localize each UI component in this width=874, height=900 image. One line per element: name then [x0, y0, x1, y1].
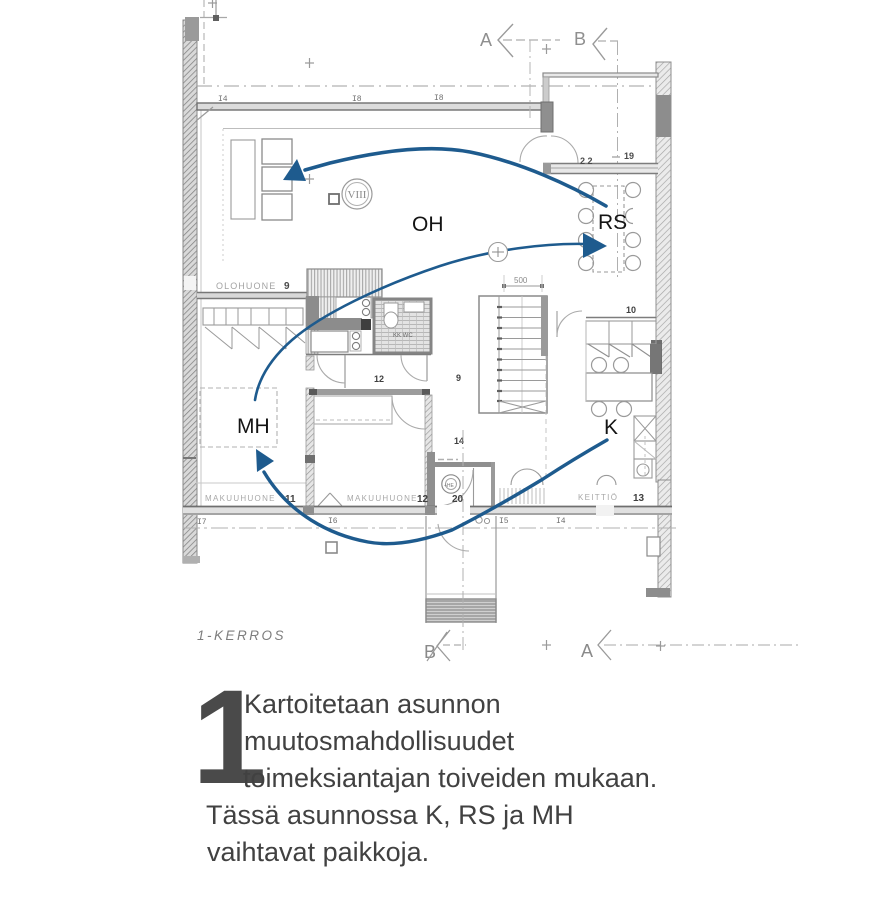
svg-text:K: K — [604, 416, 618, 439]
svg-text:OH: OH — [412, 213, 444, 236]
svg-text:A: A — [581, 641, 593, 661]
svg-text:500: 500 — [514, 276, 528, 285]
svg-text:RS: RS — [598, 211, 627, 234]
svg-text:19: 19 — [624, 151, 634, 161]
svg-text:OLOHUONE: OLOHUONE — [216, 281, 276, 291]
svg-text:I7: I7 — [197, 518, 207, 527]
svg-text:I5: I5 — [499, 517, 509, 526]
svg-text:9: 9 — [284, 281, 290, 292]
svg-text:2 2: 2 2 — [580, 156, 593, 166]
svg-text:B: B — [424, 642, 436, 662]
svg-text:MAKUUHUONE: MAKUUHUONE — [205, 494, 276, 503]
svg-text:B: B — [574, 29, 586, 49]
svg-text:I4: I4 — [218, 95, 228, 104]
svg-text:MH: MH — [237, 415, 270, 438]
svg-text:+HE: +HE — [444, 483, 455, 489]
svg-text:12: 12 — [374, 374, 384, 384]
svg-text:I4: I4 — [556, 517, 566, 526]
svg-text:KEITTIÖ: KEITTIÖ — [578, 493, 618, 502]
svg-text:KK WC: KK WC — [393, 333, 413, 339]
svg-text:10: 10 — [626, 305, 636, 315]
svg-text:I8: I8 — [352, 95, 362, 104]
svg-text:I6: I6 — [328, 517, 338, 526]
svg-text:20: 20 — [452, 494, 464, 505]
svg-text:A: A — [480, 30, 492, 50]
svg-text:1-KERROS: 1-KERROS — [197, 628, 286, 643]
svg-text:MAKUUHUONE: MAKUUHUONE — [347, 494, 418, 503]
svg-text:VIII: VIII — [348, 189, 367, 201]
svg-text:13: 13 — [633, 493, 645, 504]
svg-text:9: 9 — [456, 373, 461, 383]
svg-text:I8: I8 — [434, 94, 444, 103]
svg-text:12: 12 — [417, 494, 429, 505]
